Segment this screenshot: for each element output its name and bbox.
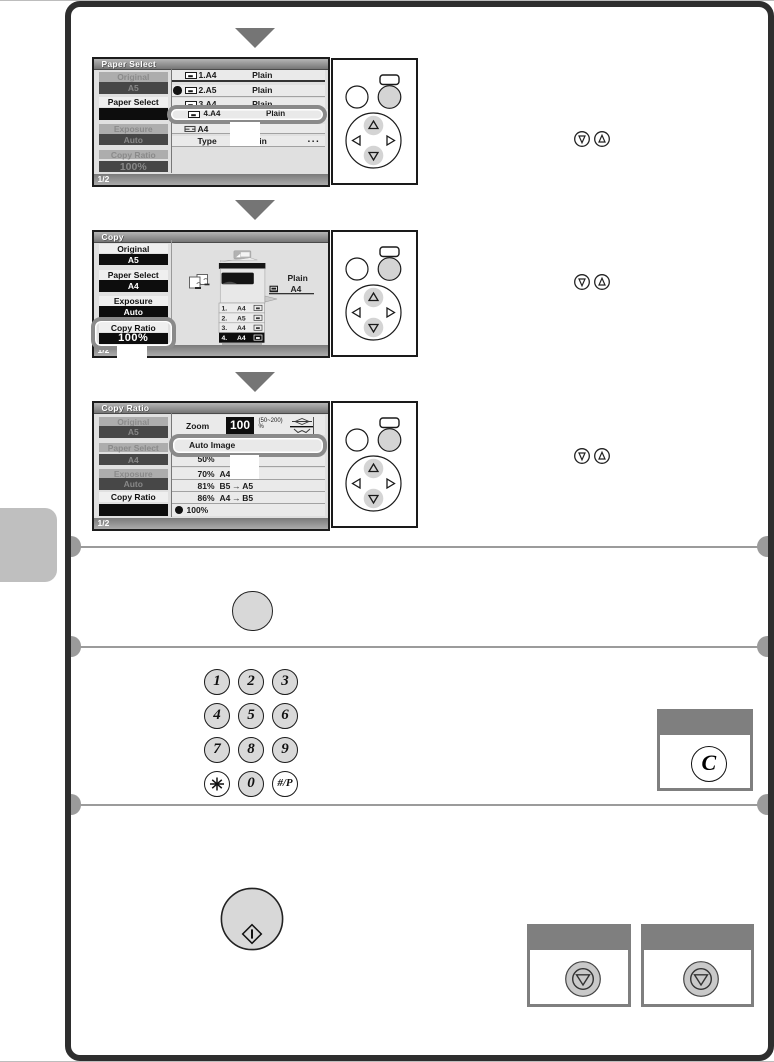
- svg-text:2.: 2.: [222, 315, 228, 322]
- svg-text:Plain: Plain: [288, 273, 308, 283]
- svg-text:A4: A4: [291, 284, 302, 294]
- svg-text:A4: A4: [237, 335, 246, 342]
- svg-text:3.: 3.: [222, 325, 228, 332]
- svg-text:A4: A4: [237, 305, 246, 312]
- svg-text:A4: A4: [237, 325, 246, 332]
- svg-text:A5: A5: [237, 315, 246, 322]
- svg-text:4.: 4.: [222, 335, 228, 342]
- svg-text:1.: 1.: [222, 305, 228, 312]
